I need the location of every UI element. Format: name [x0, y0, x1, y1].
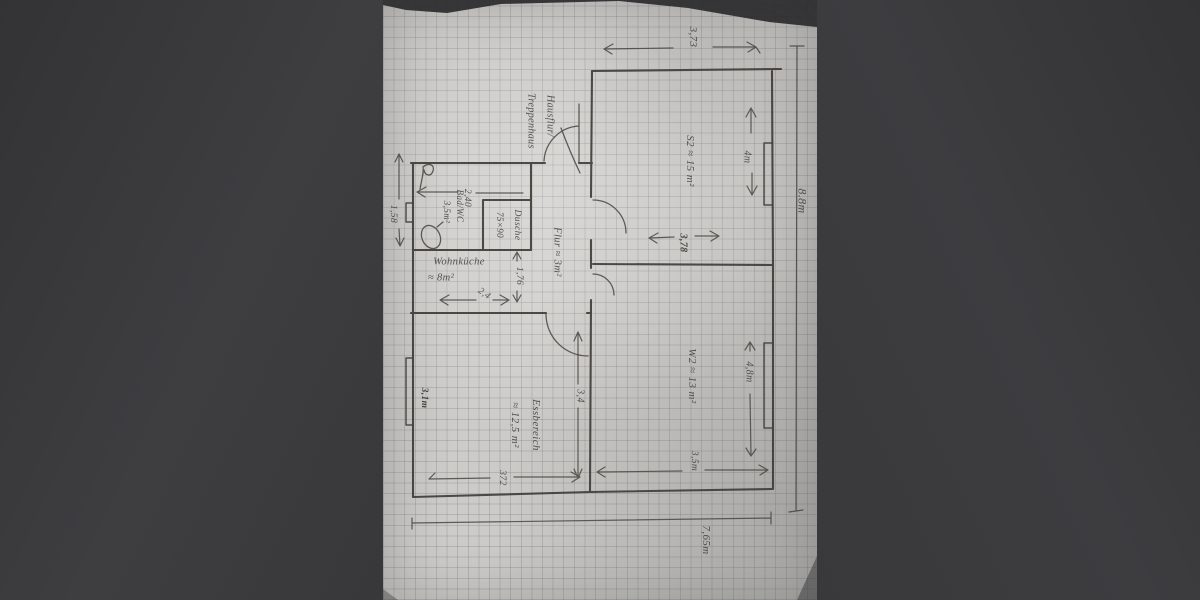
door-arc-s2 — [593, 200, 626, 233]
dim-label-ess-depth: 3,4 — [575, 389, 586, 403]
screenshot-root: S2 ≈ 15 m² W2 ≈ 13 m² Essbereich ≈ 12,5 … — [0, 0, 1200, 600]
dim-right-height-line — [789, 46, 804, 512]
door-arc-essbereich — [546, 314, 588, 356]
toilet-symbol — [418, 222, 444, 251]
dim-w2-width-line — [597, 465, 768, 477]
wall-top-s2 — [592, 69, 781, 71]
window-w2-right — [764, 343, 772, 428]
dim-bottom-width-line — [412, 512, 771, 529]
dim-kitchen-width-line — [440, 295, 509, 305]
paper-corner-bottom-left — [383, 589, 398, 600]
wall-center-spine — [590, 71, 592, 492]
room-label-s2: S2 ≈ 15 m² — [684, 135, 696, 187]
dark-background-right — [817, 0, 1200, 600]
flag-doodle — [420, 164, 433, 189]
shower-box — [483, 200, 531, 250]
walls — [411, 69, 781, 497]
room-label-essbereich-name: Essbereich — [530, 399, 542, 451]
dim-left-upper-line — [395, 154, 404, 246]
dim-label-right-height: 8.8m — [795, 188, 810, 213]
dim-label-ess-width: 372 — [497, 470, 507, 485]
room-label-wohnkueche-name: Wohnküche — [433, 257, 485, 268]
dim-label-left-window: 3,1m — [419, 388, 429, 409]
room-label-dusche-size: 75×90 — [495, 212, 505, 238]
label-leader-line — [561, 128, 580, 173]
label-hausflur-line2: Treppenhaus — [526, 93, 537, 149]
wall-bottom — [413, 489, 772, 497]
dim-label-bad-width: 2,40 — [462, 189, 472, 207]
dim-label-left-upper: 1,58 — [388, 205, 398, 223]
dim-label-top-width: 3,73 — [687, 27, 699, 48]
floorplan-drawing — [383, 0, 817, 600]
graph-paper-photo: S2 ≈ 15 m² W2 ≈ 13 m² Essbereich ≈ 12,5 … — [383, 0, 817, 600]
room-label-wohnkueche-area: ≈ 8m² — [428, 273, 454, 284]
dimension-lines — [395, 42, 804, 529]
room-label-dusche-name: Dusche — [512, 210, 522, 241]
room-label-bad-area: 3,5m² — [442, 201, 452, 223]
room-label-flur: Flur ≈ 3m² — [552, 227, 563, 277]
dim-label-middle-width: 3,78 — [678, 233, 689, 252]
dim-label-w2-window: 4,8m — [744, 361, 755, 382]
paper-corner-bottom-right — [797, 556, 817, 600]
windows — [406, 143, 772, 428]
room-label-essbereich-area: ≈ 12,5 m² — [509, 402, 521, 448]
room-label-w2: W2 ≈ 13 m² — [686, 348, 698, 403]
label-hausflur-line1: Hausflur/ — [545, 95, 556, 137]
dim-label-bottom-width: 7,65m — [700, 525, 712, 554]
dim-w2-window-line — [745, 342, 756, 456]
paper-top-edge — [383, 0, 817, 27]
fixtures — [418, 164, 444, 251]
door-arc-w2 — [593, 274, 614, 295]
wall-s2-w2-divider — [593, 264, 772, 265]
dim-label-s2-window: 4m — [742, 150, 753, 163]
wall-right — [772, 71, 773, 489]
dark-background-left — [0, 0, 383, 600]
dim-label-flur-width: 1,76 — [514, 267, 524, 285]
window-s2-right — [764, 143, 772, 205]
dim-label-w2-width: 3,5m — [689, 451, 699, 471]
dim-top-width-line — [604, 42, 760, 54]
